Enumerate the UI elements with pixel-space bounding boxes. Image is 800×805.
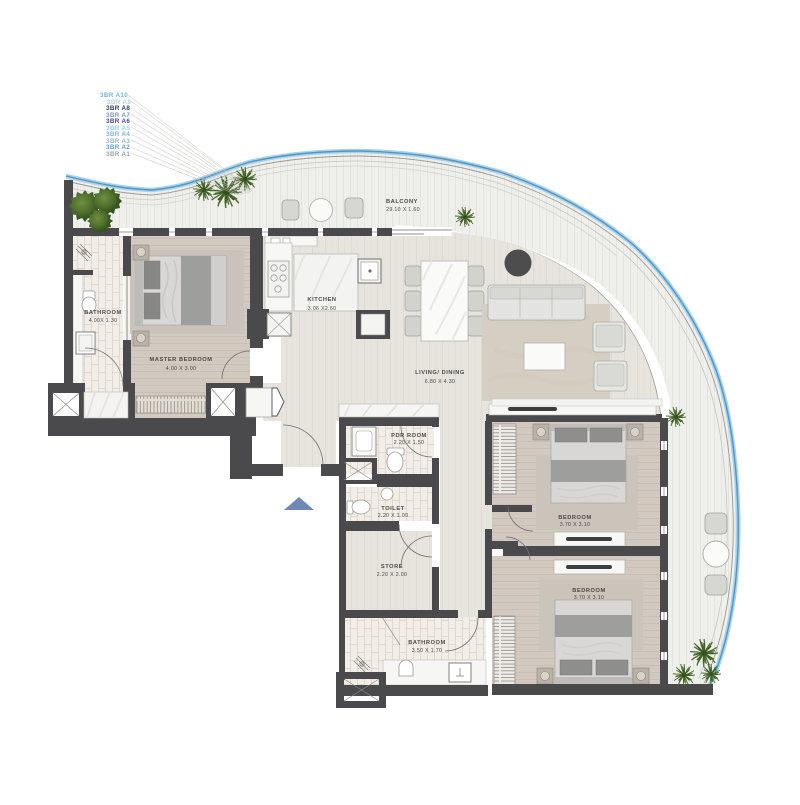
svg-text:BEDROOM: BEDROOM xyxy=(572,588,606,594)
svg-text:MASTER BEDROOM: MASTER BEDROOM xyxy=(150,357,213,363)
svg-text:3.70 X 3.10: 3.70 X 3.10 xyxy=(574,595,604,601)
svg-text:BATHROOM: BATHROOM xyxy=(408,640,445,646)
svg-text:3.50 X 1.70: 3.50 X 1.70 xyxy=(412,648,442,654)
svg-text:2.20 X 1.50: 2.20 X 1.50 xyxy=(394,440,424,446)
svg-text:2.20 X 1.00: 2.20 X 1.00 xyxy=(378,513,408,519)
svg-text:TOILET: TOILET xyxy=(381,506,404,512)
svg-text:3BR A4: 3BR A4 xyxy=(106,131,130,138)
svg-text:BALCONY: BALCONY xyxy=(386,199,418,205)
svg-text:PDR ROOM: PDR ROOM xyxy=(391,433,427,439)
svg-text:3BR A8: 3BR A8 xyxy=(106,105,130,112)
svg-text:3BR A6: 3BR A6 xyxy=(106,118,130,125)
svg-text:3BR A2: 3BR A2 xyxy=(106,144,130,151)
svg-text:KITCHEN: KITCHEN xyxy=(307,297,336,303)
svg-text:BEDROOM: BEDROOM xyxy=(558,515,592,521)
svg-text:3.06 X2.60: 3.06 X2.60 xyxy=(308,306,337,312)
svg-text:BATHROOM: BATHROOM xyxy=(84,310,121,316)
svg-text:4.00 X 3.00: 4.00 X 3.00 xyxy=(166,366,196,372)
svg-text:3.70 X 3.10: 3.70 X 3.10 xyxy=(560,522,590,528)
svg-text:3BR A10: 3BR A10 xyxy=(100,92,128,99)
svg-text:STORE: STORE xyxy=(381,564,403,570)
svg-text:29.10 X 1.60: 29.10 X 1.60 xyxy=(386,207,420,213)
svg-text:6.80 X 4.30: 6.80 X 4.30 xyxy=(425,379,455,385)
svg-text:LIVING/ DINING: LIVING/ DINING xyxy=(415,370,465,376)
svg-text:2.20 X 2.00: 2.20 X 2.00 xyxy=(377,572,407,578)
svg-text:3BR A1: 3BR A1 xyxy=(106,151,130,158)
svg-text:4.00X 1.30: 4.00X 1.30 xyxy=(89,318,118,324)
